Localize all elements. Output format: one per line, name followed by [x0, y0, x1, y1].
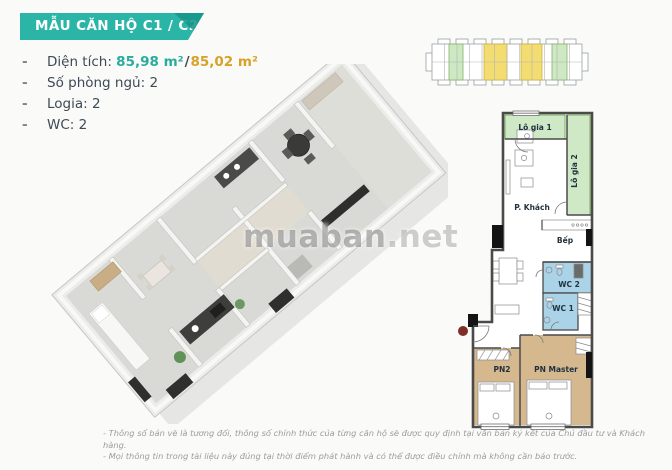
bullet-dash: - [22, 54, 47, 71]
title-banner: MẪU CĂN HỘ C1 / C2 [20, 13, 204, 40]
brochure-page: MẪU CĂN HỘ C1 / C2 - Diện tích: 85,98 m²… [0, 0, 672, 470]
label-bedroom2: PN2 [494, 365, 511, 374]
label-kitchen: Bếp [557, 236, 574, 245]
floor-plan-3d [48, 64, 448, 424]
label-logia2: Lô gia 2 [570, 154, 579, 187]
entry-plant [458, 326, 468, 336]
label-wc2: WC 2 [558, 280, 580, 289]
footer-note-2: - Mọi thông tin trong tài liệu này đúng … [103, 451, 669, 463]
building-key-plan [424, 34, 590, 92]
label-wc1: WC 1 [552, 304, 574, 313]
bullet-dash: - [22, 96, 47, 113]
label-logia1: Lô gia 1 [518, 123, 551, 132]
label-bedroom-master: PN Master [534, 365, 578, 374]
bullet-dash: - [22, 75, 47, 92]
floor-plan-2d: Lô gia 1 Lô gia 2 P. Khách Bếp WC 2 WC 1… [455, 98, 605, 443]
page-title: MẪU CĂN HỘ C1 / C2 [35, 18, 199, 34]
bullet-dash: - [22, 117, 47, 134]
footer-notes: - Thông số bản vẽ là tương đối, thông số… [103, 428, 669, 463]
label-living: P. Khách [514, 203, 550, 212]
footer-note-1: - Thông số bản vẽ là tương đối, thông số… [103, 428, 669, 451]
